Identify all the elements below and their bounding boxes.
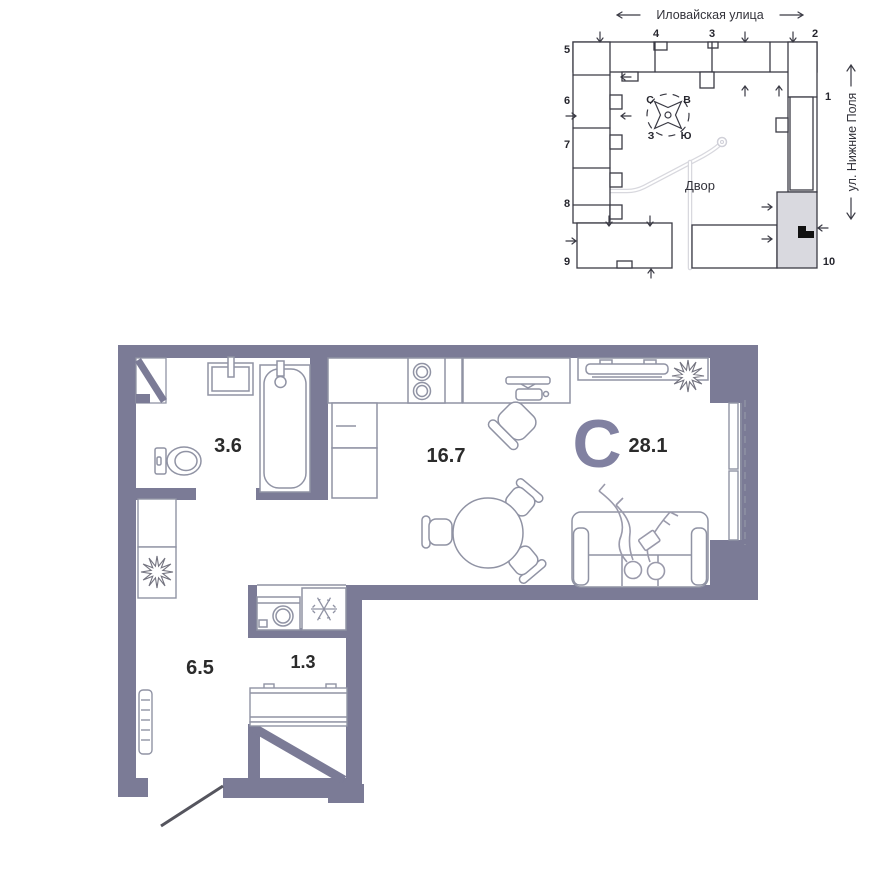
stove-icon (408, 358, 445, 403)
street-top: Иловайская улица (617, 8, 803, 22)
building-bottom-middle-wing (692, 225, 777, 268)
wall-right-upper-block (710, 345, 740, 403)
compass-north: С (646, 94, 654, 106)
highlighted-section[interactable] (777, 192, 817, 268)
fridge-snowflake-icon (302, 588, 346, 630)
bathtub-icon (260, 361, 310, 492)
hallway-area-label: 6.5 (186, 657, 214, 679)
apartment-plan: 3.6 16.7 6.5 1.3 С 28.1 (118, 345, 758, 826)
wall-right (740, 345, 758, 600)
courtyard-label: Двор (685, 178, 715, 193)
wall-niche-west (248, 585, 257, 633)
wall-bottom-corner (328, 784, 364, 803)
radiator-icon (139, 690, 152, 754)
street-right-label: ул. Нижние Поля (845, 93, 859, 192)
bathroom-area-label: 3.6 (214, 435, 242, 457)
wall-closet-east (346, 585, 362, 790)
street-top-label: Иловайская улица (656, 8, 763, 22)
wall-left (118, 345, 136, 797)
toilet-icon (155, 447, 201, 475)
floorplan-drawing: С В З Ю Двор 1 2 3 4 5 6 7 8 9 10 Иловай… (0, 0, 880, 880)
compass-east: В (683, 94, 691, 106)
arrow-up-icon (847, 65, 855, 86)
wall-top (118, 345, 758, 358)
closet (250, 684, 347, 726)
section-4: 4 (653, 28, 660, 40)
closet-rod (250, 722, 347, 726)
compass-south: Ю (681, 130, 692, 142)
mouse-icon (544, 392, 549, 397)
apartment-type-letter: С (572, 406, 621, 482)
wall-left-foot (118, 778, 148, 797)
compass-rose-icon: С В З Ю (646, 94, 691, 142)
section-1: 1 (825, 91, 831, 103)
bathroom (155, 357, 310, 492)
kitchen (328, 358, 462, 498)
arrow-left-icon (617, 12, 640, 18)
section-5: 5 (564, 44, 570, 56)
laptop-icon (516, 389, 542, 400)
entry-door-swing-icon (161, 786, 223, 826)
section-3: 3 (709, 28, 715, 40)
section-8: 8 (564, 198, 570, 210)
office-chair-icon (487, 397, 541, 451)
arrow-right-icon (780, 12, 803, 18)
site-minimap: С В З Ю Двор 1 2 3 4 5 6 7 8 9 10 Иловай… (564, 8, 859, 278)
hall-cabinet (138, 499, 176, 547)
washing-machine-icon (257, 597, 300, 630)
dining-area (422, 477, 547, 585)
compass-west: З (648, 130, 655, 142)
section-7: 7 (564, 139, 570, 151)
floorplan-page: С В З Ю Двор 1 2 3 4 5 6 7 8 9 10 Иловай… (0, 0, 880, 880)
kitchen-area-label: 16.7 (427, 445, 466, 467)
arrow-down-icon (847, 198, 855, 219)
hallway (138, 499, 176, 754)
section-9: 9 (564, 256, 570, 268)
kitchen-cabinet-icon (332, 403, 377, 498)
total-area-label: 28.1 (629, 435, 668, 457)
building-left-wing (573, 42, 610, 223)
section-10: 10 (823, 256, 835, 268)
section-2: 2 (812, 28, 818, 40)
wall-bathroom-right (310, 358, 328, 500)
wall-bathroom-bottom-left (136, 488, 196, 500)
street-right: ул. Нижние Поля (845, 65, 859, 219)
sink-icon (208, 357, 253, 395)
appliance-niche (257, 585, 346, 630)
vent-shaft-icon (136, 358, 166, 403)
wardrobe-diagonal-icon (254, 728, 344, 780)
closet-area-label: 1.3 (290, 652, 315, 672)
section-6: 6 (564, 95, 570, 107)
round-table-icon (453, 498, 523, 568)
workplace (463, 358, 570, 451)
